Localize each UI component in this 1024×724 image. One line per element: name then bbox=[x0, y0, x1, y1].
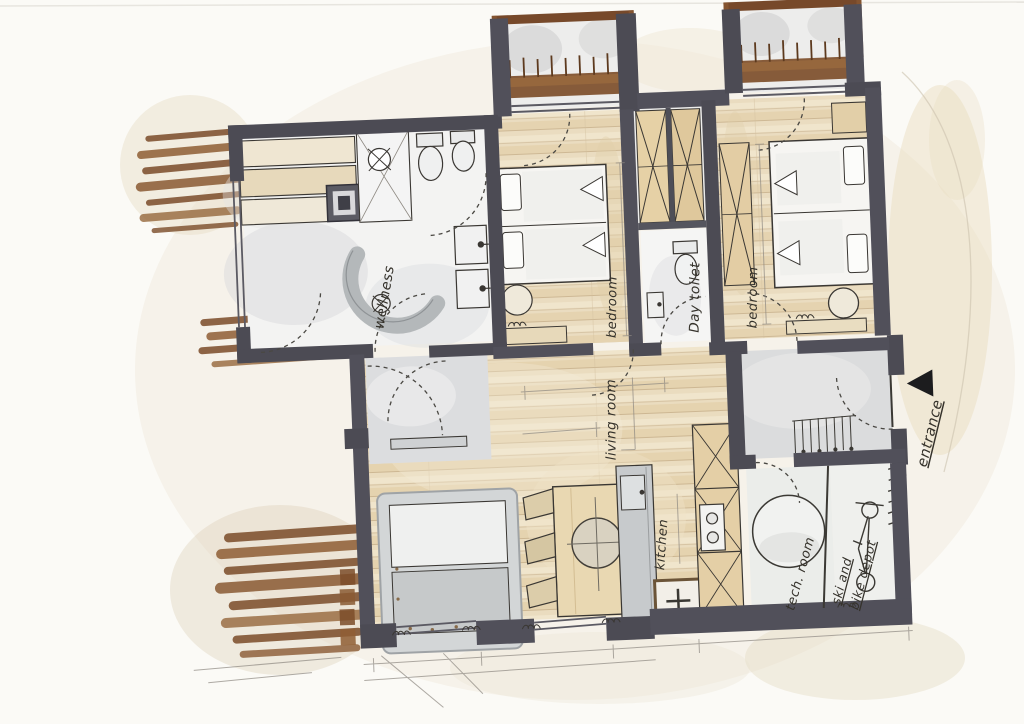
wardrobe-shaft bbox=[634, 107, 707, 231]
stool-top-bedroom bbox=[502, 284, 533, 315]
bidet-icon bbox=[450, 131, 476, 172]
stool-right-bedroom bbox=[828, 287, 859, 318]
double-bed-right bbox=[769, 138, 875, 288]
dresser-bedroom-right bbox=[832, 102, 867, 133]
small-sink-icon bbox=[647, 292, 664, 318]
terrace-top-right bbox=[723, 0, 865, 96]
toilet-icon bbox=[416, 133, 444, 181]
dining-chairs bbox=[523, 489, 558, 608]
room-label-living-room: living room bbox=[603, 379, 619, 460]
bench-right-bedroom bbox=[786, 318, 866, 334]
terrace-top-left bbox=[492, 10, 638, 113]
sauna-stove bbox=[326, 184, 361, 221]
bench-top-bedroom bbox=[504, 326, 567, 344]
wardrobe-bedroom-right bbox=[719, 143, 755, 286]
floor-plan-sketch: wellness bedroom Day toilet bedroom livi… bbox=[0, 0, 1024, 724]
room-label-day-toilet: Day toilet bbox=[687, 262, 704, 333]
room-label-bedroom-right: bedroom bbox=[745, 266, 761, 328]
kitchen-counter bbox=[616, 465, 658, 618]
room-label-bedroom-top: bedroom bbox=[605, 276, 621, 338]
double-bed-top bbox=[496, 164, 611, 284]
shower bbox=[356, 130, 412, 222]
floor-plan-canvas: wellness bedroom Day toilet bedroom livi… bbox=[0, 0, 1024, 724]
